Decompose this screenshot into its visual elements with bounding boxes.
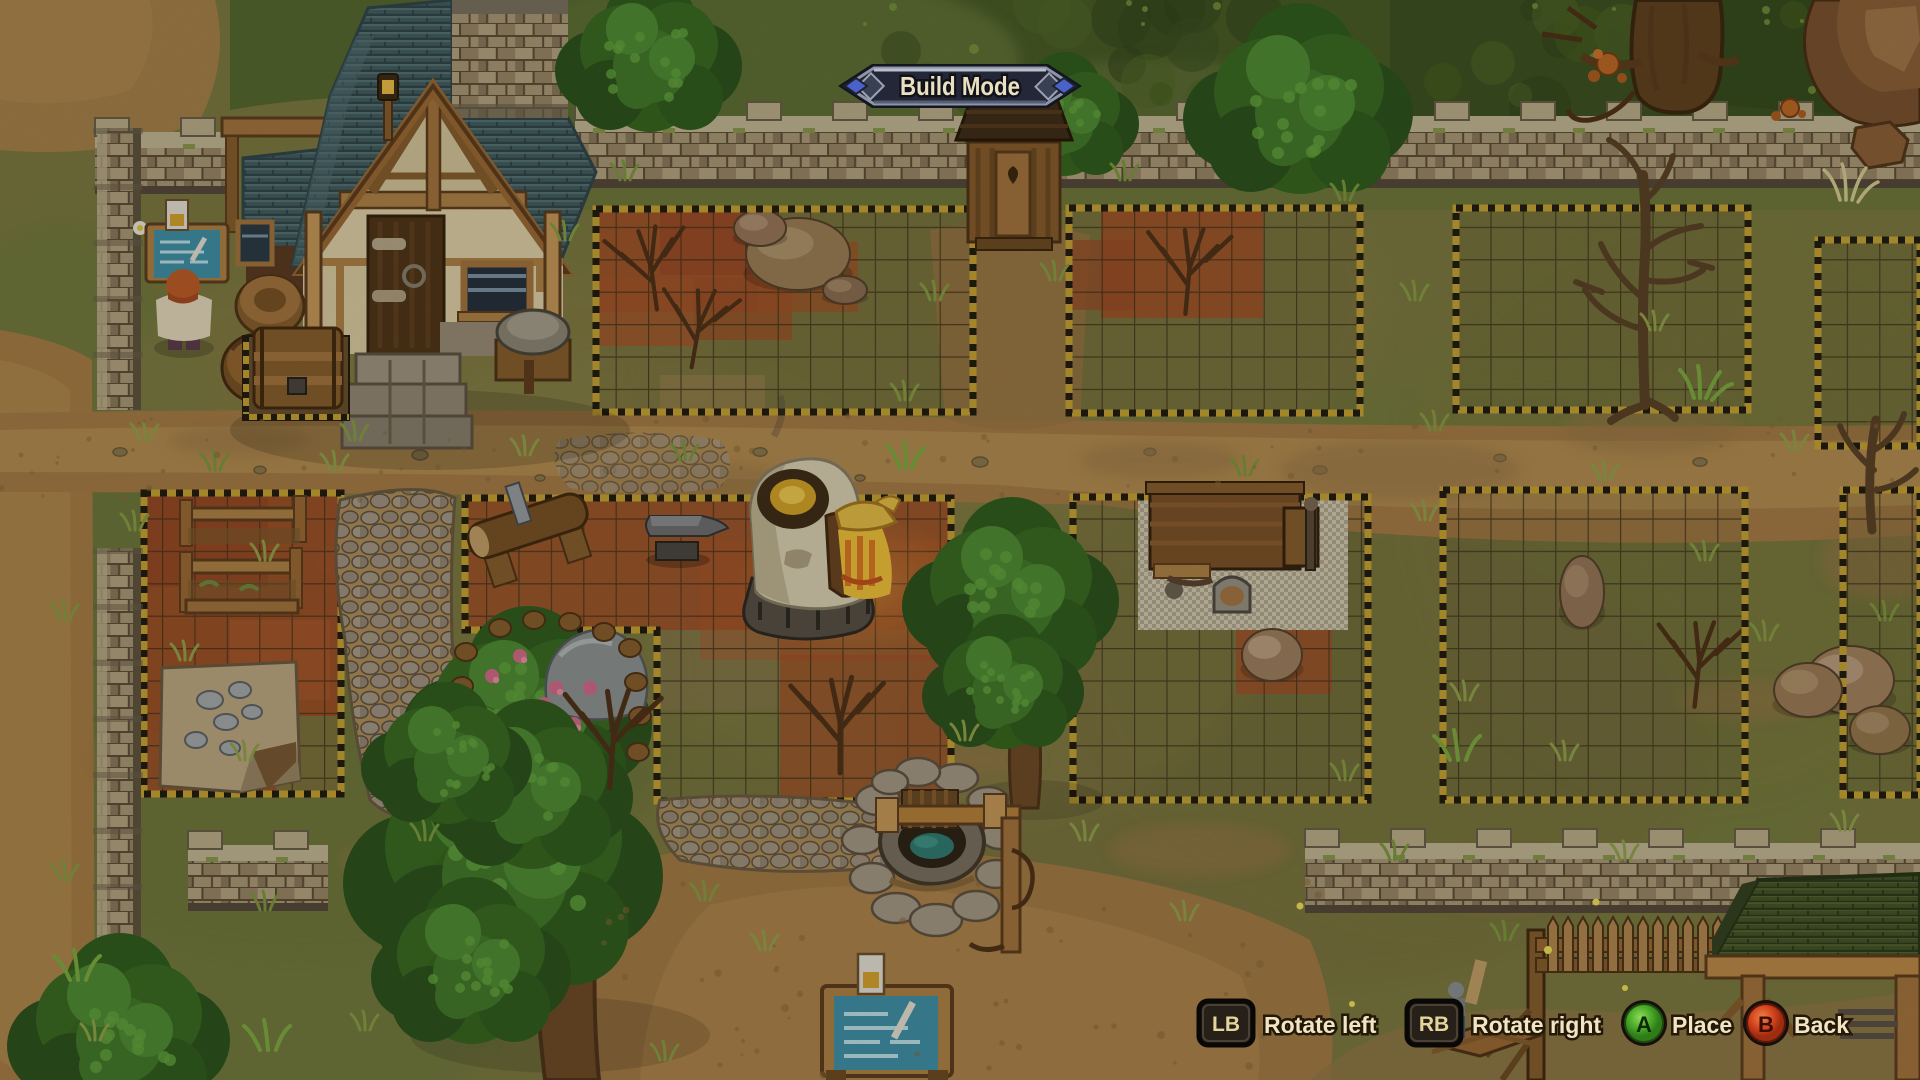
svg-text:LB: LB bbox=[1212, 1013, 1240, 1036]
svg-text:Build Mode: Build Mode bbox=[900, 71, 1020, 101]
svg-text:Back: Back bbox=[1794, 1012, 1849, 1038]
svg-text:Rotate right: Rotate right bbox=[1472, 1012, 1601, 1038]
svg-text:A: A bbox=[1636, 1012, 1652, 1037]
svg-text:RB: RB bbox=[1419, 1013, 1449, 1036]
svg-text:Rotate left: Rotate left bbox=[1264, 1012, 1377, 1038]
svg-text:B: B bbox=[1758, 1012, 1774, 1037]
svg-text:Place: Place bbox=[1672, 1012, 1732, 1038]
